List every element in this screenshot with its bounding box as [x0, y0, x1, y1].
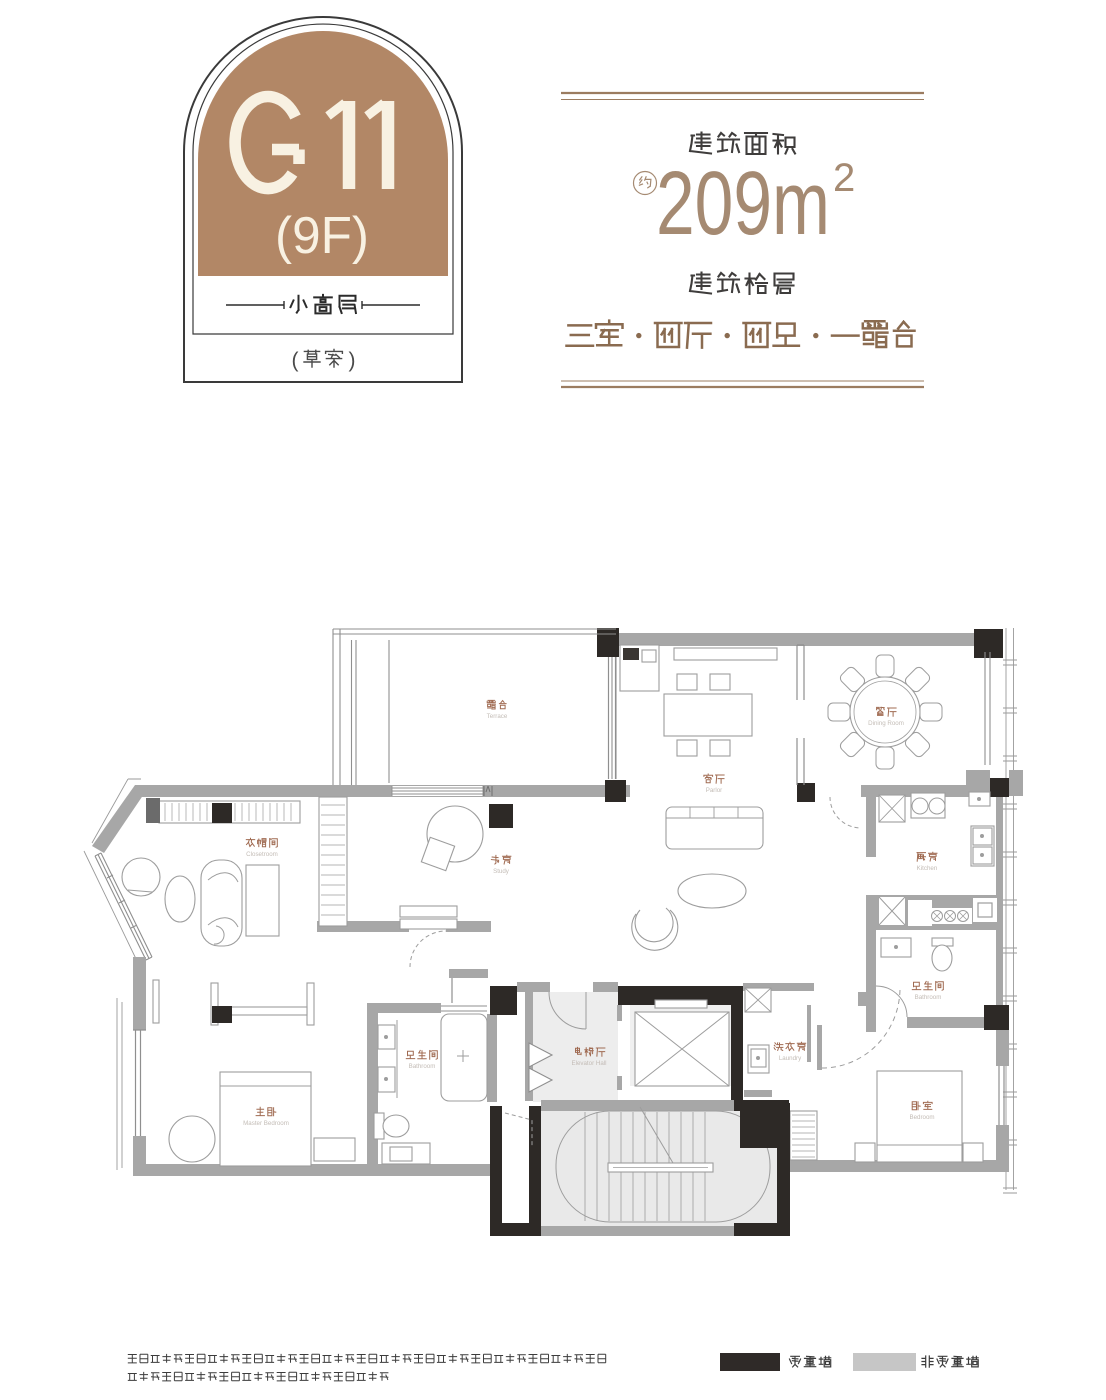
svg-text:Study: Study [493, 868, 510, 875]
svg-text:Kitchen: Kitchen [917, 865, 938, 872]
svg-text:Terrace: Terrace [487, 713, 508, 720]
svg-text:Dining Room: Dining Room [868, 720, 904, 727]
svg-text:(9F): (9F) [275, 207, 369, 265]
svg-text:Closetroom: Closetroom [246, 851, 278, 858]
svg-text:Bathroom: Bathroom [915, 994, 942, 1001]
svg-text:209m: 209m [656, 154, 830, 254]
svg-text:(: ( [292, 349, 299, 372]
svg-text:Elevator Hall: Elevator Hall [571, 1060, 606, 1067]
svg-text:Parlor: Parlor [706, 787, 723, 794]
svg-text:Bathroom: Bathroom [409, 1063, 436, 1070]
svg-text:Bedroom: Bedroom [909, 1114, 934, 1121]
svg-text:Laundry: Laundry [779, 1055, 802, 1062]
svg-text:): ) [349, 349, 356, 372]
svg-text:Master Bedroom: Master Bedroom [243, 1120, 289, 1127]
svg-text:2: 2 [833, 156, 855, 200]
